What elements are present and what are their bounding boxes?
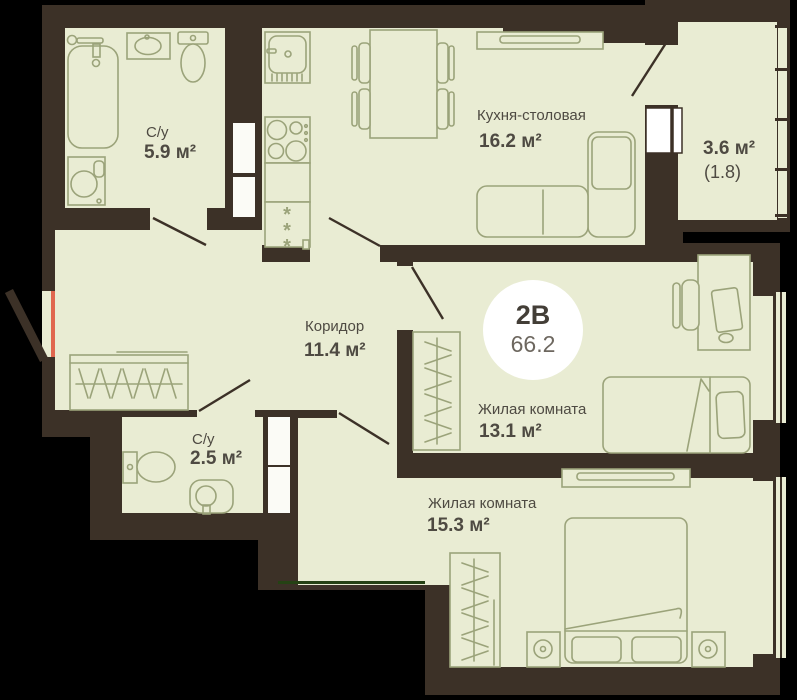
corridor-area: 11.4 м² bbox=[304, 340, 366, 361]
bathroom-2-label: С/у bbox=[192, 431, 215, 448]
floor-corridor-right bbox=[262, 262, 397, 410]
washing-machine bbox=[68, 157, 105, 205]
balcony-glazing bbox=[778, 25, 787, 218]
balcony-glazing-tick-4 bbox=[775, 168, 787, 171]
floor-plan-canvas: * * * bbox=[0, 0, 797, 700]
shaft-box-1 bbox=[233, 123, 255, 173]
kitchen-area: 16.2 м² bbox=[479, 131, 542, 152]
floor-hall-extension bbox=[298, 418, 397, 478]
bedroom-2-window-sill bbox=[753, 481, 773, 654]
door-opening-bathroom-2 bbox=[197, 410, 255, 417]
floor-plan: * * * bbox=[0, 0, 797, 700]
door-opening-bedroom-1 bbox=[397, 266, 413, 330]
balcony-glazing-tick-5 bbox=[775, 214, 787, 217]
section-line bbox=[278, 581, 425, 584]
bathroom-2-area: 2.5 м² bbox=[190, 448, 242, 469]
kitchen-tv-stand bbox=[477, 32, 603, 49]
bedroom-1-area: 13.1 м² bbox=[479, 421, 542, 442]
badge-type: 2В bbox=[516, 300, 551, 330]
balcony-glazing-tick-2 bbox=[775, 68, 787, 71]
shaft-box-3 bbox=[268, 417, 290, 465]
desk-chair bbox=[673, 280, 699, 330]
bathtub bbox=[68, 36, 119, 149]
single-bed bbox=[603, 377, 750, 453]
bedroom-1-window-sill bbox=[753, 296, 773, 420]
fridge-mark-3: * bbox=[283, 236, 291, 258]
bathroom-1-area: 5.9 м² bbox=[144, 142, 196, 163]
entrance-door-line bbox=[51, 291, 55, 357]
double-bed bbox=[565, 518, 687, 663]
floor-balcony bbox=[678, 22, 777, 220]
kitchen-balcony-window-icon-2 bbox=[673, 108, 682, 153]
balcony-glazing-tick-3 bbox=[775, 118, 787, 121]
balcony-area-reduced: (1.8) bbox=[704, 162, 741, 182]
desk bbox=[698, 255, 750, 350]
badge-circle bbox=[483, 280, 583, 380]
kitchen-balcony-window-icon bbox=[646, 108, 671, 153]
door-opening-bathroom-1 bbox=[150, 208, 207, 230]
bedroom-2-label: Жилая комната bbox=[428, 495, 537, 512]
bathroom-2-toilet bbox=[123, 452, 175, 483]
bedroom-1-window-frame-line bbox=[780, 292, 782, 423]
apartment-badge: 2В 66.2 bbox=[483, 280, 583, 380]
badge-area: 66.2 bbox=[511, 331, 556, 357]
bedroom-2-area: 15.3 м² bbox=[427, 515, 490, 536]
door-opening-balcony bbox=[645, 45, 678, 105]
bathroom-1-label: С/у bbox=[146, 124, 169, 141]
corridor-label: Коридор bbox=[305, 318, 364, 335]
bathroom-2-sink bbox=[190, 480, 233, 514]
stove bbox=[265, 117, 310, 163]
bedroom-1-label: Жилая комната bbox=[478, 401, 587, 418]
floor-corridor-left bbox=[55, 230, 262, 410]
door-opening-kitchen bbox=[310, 245, 380, 262]
shaft-box-2 bbox=[233, 177, 255, 217]
kitchen-label: Кухня-столовая bbox=[477, 107, 586, 124]
nightstand-left bbox=[527, 632, 560, 667]
kitchen-counter bbox=[265, 163, 310, 202]
kitchen-sink-unit bbox=[265, 32, 310, 83]
dining-table bbox=[370, 30, 437, 138]
nightstand-right bbox=[692, 632, 725, 667]
bedroom-2-window-frame-line bbox=[780, 477, 782, 658]
balcony-area: 3.6 м² bbox=[703, 138, 755, 159]
dresser bbox=[562, 469, 690, 487]
shaft-box-4 bbox=[268, 467, 290, 513]
bathroom-1-sink bbox=[127, 33, 170, 59]
balcony-glazing-tick-1 bbox=[775, 25, 787, 28]
